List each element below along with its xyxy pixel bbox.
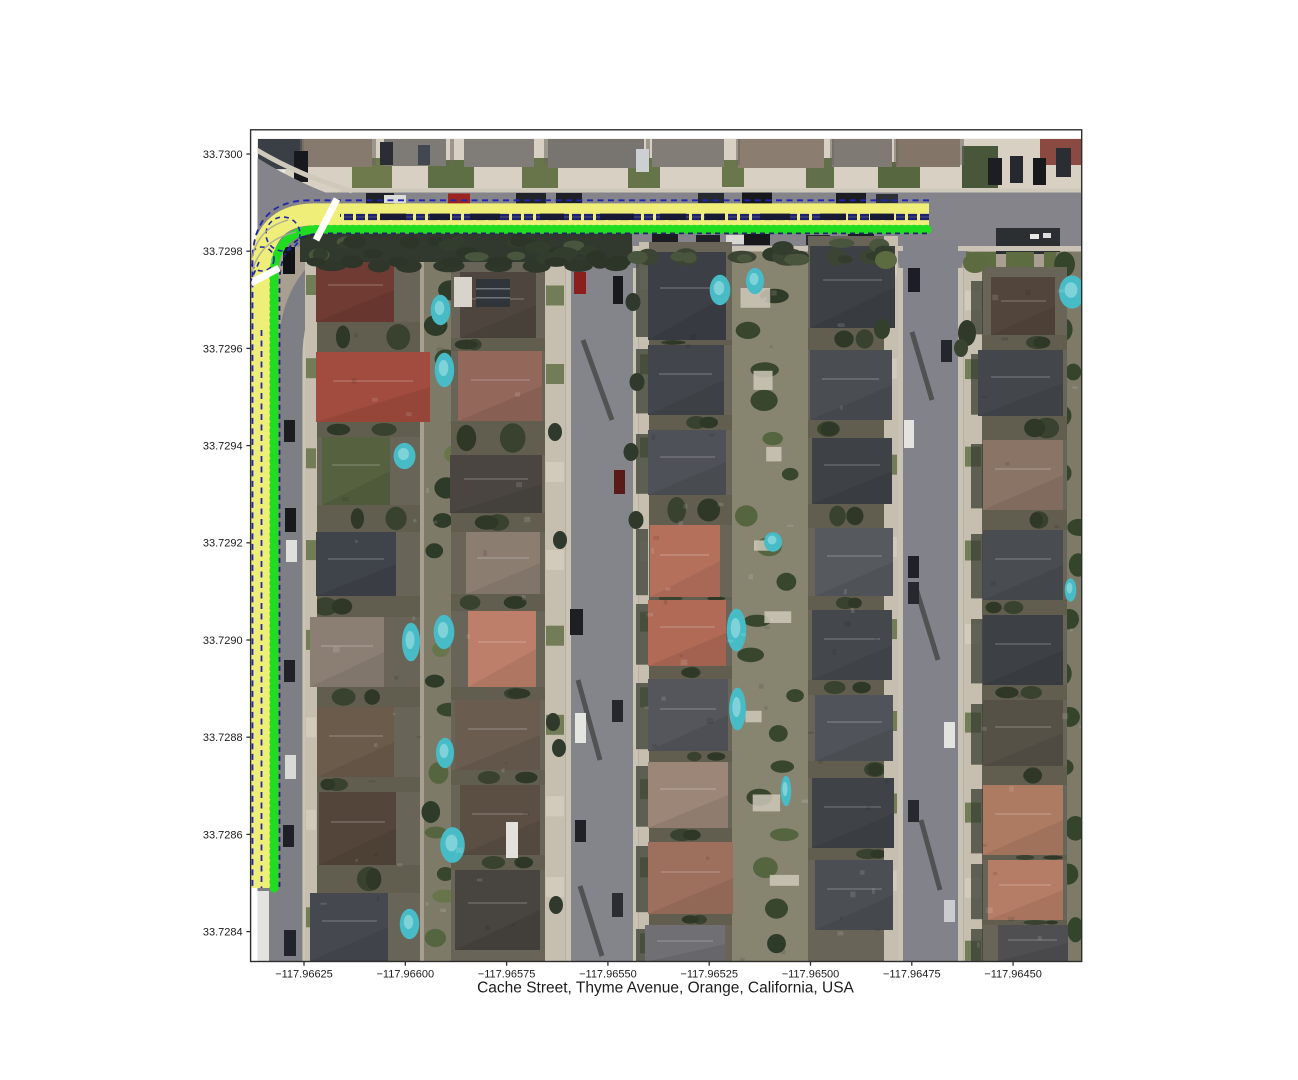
svg-text:33.7294: 33.7294 [203,441,243,453]
svg-text:−117.96600: −117.96600 [376,969,434,981]
svg-text:Cache Street, Thyme Avenue, Or: Cache Street, Thyme Avenue, Orange, Cali… [477,980,854,997]
svg-text:33.7298: 33.7298 [203,246,243,258]
svg-text:−117.96475: −117.96475 [883,969,941,981]
svg-text:33.7288: 33.7288 [203,732,243,744]
svg-text:−117.96625: −117.96625 [275,969,333,981]
svg-text:33.7284: 33.7284 [203,927,243,939]
svg-text:33.7296: 33.7296 [203,343,243,355]
svg-text:33.7286: 33.7286 [203,829,243,841]
svg-text:33.7300: 33.7300 [203,149,243,161]
svg-text:33.7290: 33.7290 [203,635,243,647]
svg-text:−117.96450: −117.96450 [984,969,1042,981]
svg-text:33.7292: 33.7292 [203,538,243,550]
